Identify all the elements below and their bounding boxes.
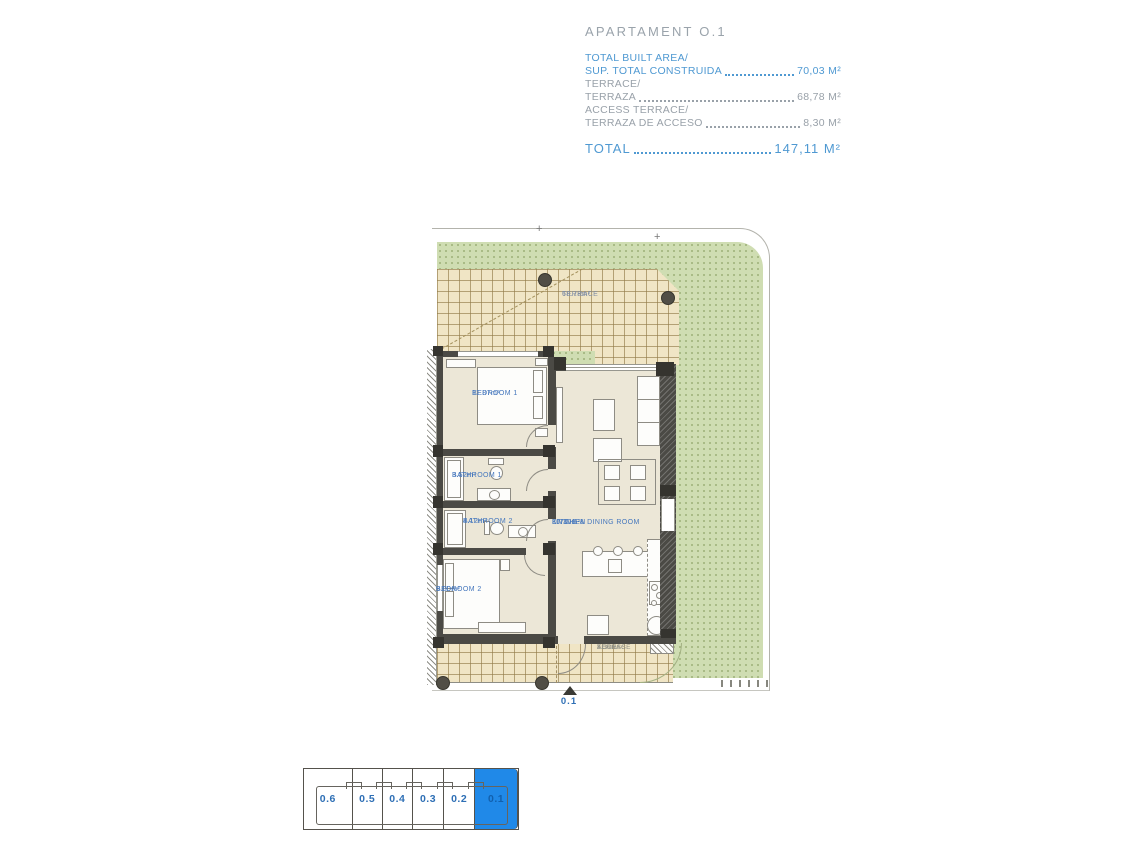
column <box>554 357 566 370</box>
area-item-line2: SUP. TOTAL CONSTRUIDA <box>585 65 722 78</box>
fence-tick <box>766 680 768 687</box>
toilet-tank <box>488 458 504 465</box>
column <box>661 629 676 638</box>
room-area: 8.30m² <box>597 644 620 653</box>
area-item-line1: TERRACE/ <box>585 78 841 91</box>
wall <box>548 555 556 636</box>
unit-marker: 0.1 <box>554 696 584 707</box>
boundary-mark: + <box>536 224 542 234</box>
bed-pillow <box>533 396 543 419</box>
area-item-line2: TERRAZA DE ACCESO <box>585 117 703 130</box>
dining-table <box>598 459 656 505</box>
keyplan-outline-notch <box>406 782 422 789</box>
fence-tick <box>739 680 741 687</box>
total-value: 147,11 M² <box>774 141 841 156</box>
bar-stool <box>633 546 643 556</box>
bedroom2-closet <box>478 622 526 633</box>
area-item-value: 70,03 M² <box>797 65 841 78</box>
round-column <box>538 273 552 287</box>
round-column <box>661 291 675 305</box>
column <box>660 485 676 496</box>
access-terrace-floor <box>437 641 673 683</box>
area-item-built: TOTAL BUILT AREA/ SUP. TOTAL CONSTRUIDA … <box>585 52 841 78</box>
column <box>433 637 444 648</box>
column <box>433 543 443 555</box>
column <box>543 543 555 555</box>
area-item-line1: TOTAL BUILT AREA/ <box>585 52 841 65</box>
page-title: APARTAMENT O.1 <box>585 24 841 39</box>
total-label: TOTAL <box>585 141 631 156</box>
bed-pillow <box>445 591 454 617</box>
walkway-divider-line <box>556 641 557 683</box>
fridge <box>587 615 609 635</box>
sofa <box>637 376 660 446</box>
column <box>433 445 443 457</box>
area-item-value: 8,30 M² <box>803 117 841 130</box>
round-column <box>535 676 549 690</box>
fence-tick <box>730 680 732 687</box>
fence-tick <box>757 680 759 687</box>
hob-burner <box>651 600 657 606</box>
boundary-mark: + <box>654 232 660 242</box>
keyplan: 0.6 0.5 0.4 0.3 0.2 0.1 <box>303 768 519 830</box>
keyplan-outline-notch <box>346 782 362 789</box>
area-item-terrace: TERRACE/ TERRAZA 68,78 M² <box>585 78 841 104</box>
room-area: 3.52m² <box>452 471 476 480</box>
fence-tick <box>748 680 750 687</box>
fence-tick <box>721 680 723 687</box>
door-opening <box>548 469 556 491</box>
bed-pillow <box>533 370 543 393</box>
column <box>433 496 443 508</box>
keyplan-building-outline <box>316 786 508 825</box>
column <box>543 496 555 508</box>
area-item-access-terrace: ACCESS TERRACE/ TERRAZA DE ACCESO 8,30 M… <box>585 104 841 130</box>
room-area: 9.00m² <box>436 585 460 594</box>
room-area: 11.87m² <box>472 389 500 398</box>
column <box>543 637 555 648</box>
area-item-line2: TERRAZA <box>585 91 636 104</box>
bar-stool <box>593 546 603 556</box>
window <box>661 499 675 531</box>
window <box>458 351 538 357</box>
dotted-leader <box>639 100 794 102</box>
sliding-glass-door <box>566 364 656 371</box>
total-row: TOTAL 147,11 M² <box>585 141 841 156</box>
door-opening <box>548 425 556 447</box>
floor-plan: + + TERRACE 68.78m² BEDROOM 1 11.87m² BA… <box>432 228 770 691</box>
wall <box>437 634 556 644</box>
room-area: 4.12m² <box>463 517 487 526</box>
dotted-leader <box>634 152 772 154</box>
column <box>543 346 554 357</box>
round-column <box>436 676 450 690</box>
room-area: 30.30m² <box>552 518 580 527</box>
sink-basin <box>489 490 500 500</box>
hob-burner <box>651 584 658 591</box>
bedroom1-wardrobe <box>446 359 476 368</box>
room-area: 68.78m² <box>562 290 590 299</box>
column <box>433 346 443 356</box>
dotted-leader <box>725 74 794 76</box>
area-item-value: 68,78 M² <box>797 91 841 104</box>
page: APARTAMENT O.1 TOTAL BUILT AREA/ SUP. TO… <box>0 0 1140 860</box>
armchair <box>593 399 615 431</box>
dotted-leader <box>706 126 801 128</box>
party-wall-hatch <box>427 349 437 685</box>
entrance-arrow-icon <box>563 686 577 695</box>
wall <box>437 449 556 456</box>
nightstand <box>500 559 510 571</box>
column <box>543 445 555 457</box>
column <box>656 362 674 376</box>
shower-tray <box>447 513 463 545</box>
kitchen-sink <box>608 559 622 573</box>
wall <box>437 501 556 508</box>
keyplan-outline-notch <box>468 782 484 789</box>
nightstand <box>535 358 548 366</box>
apartment-summary: APARTAMENT O.1 TOTAL BUILT AREA/ SUP. TO… <box>585 24 841 156</box>
tv-unit <box>556 387 563 443</box>
entry-door-opening <box>558 636 584 644</box>
keyplan-outline-notch <box>437 782 453 789</box>
keyplan-outline-notch <box>376 782 392 789</box>
area-item-line1: ACCESS TERRACE/ <box>585 104 841 117</box>
bar-stool <box>613 546 623 556</box>
